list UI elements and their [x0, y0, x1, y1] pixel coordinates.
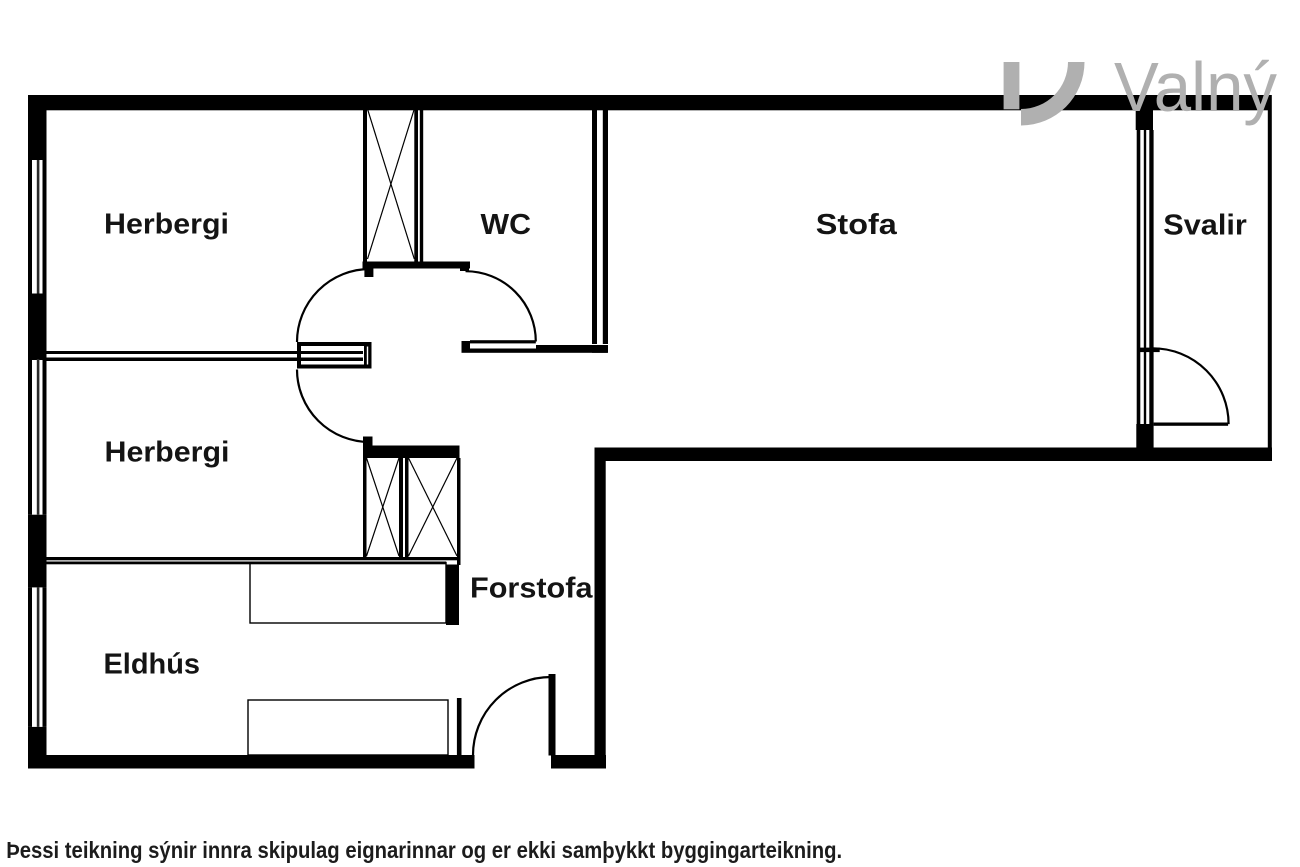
svg-text:Svalir: Svalir [1163, 210, 1247, 242]
svg-text:Valný: Valný [1114, 48, 1277, 126]
svg-text:Herbergi: Herbergi [104, 208, 229, 240]
svg-text:Stofa: Stofa [816, 209, 898, 241]
svg-text:Forstofa: Forstofa [470, 573, 594, 605]
svg-text:Eldhús: Eldhús [104, 649, 201, 681]
svg-text:Þessi teikning sýnir innra ski: Þessi teikning sýnir innra skipulag eign… [6, 837, 842, 863]
svg-text:Herbergi: Herbergi [105, 436, 230, 468]
svg-text:WC: WC [481, 209, 532, 241]
